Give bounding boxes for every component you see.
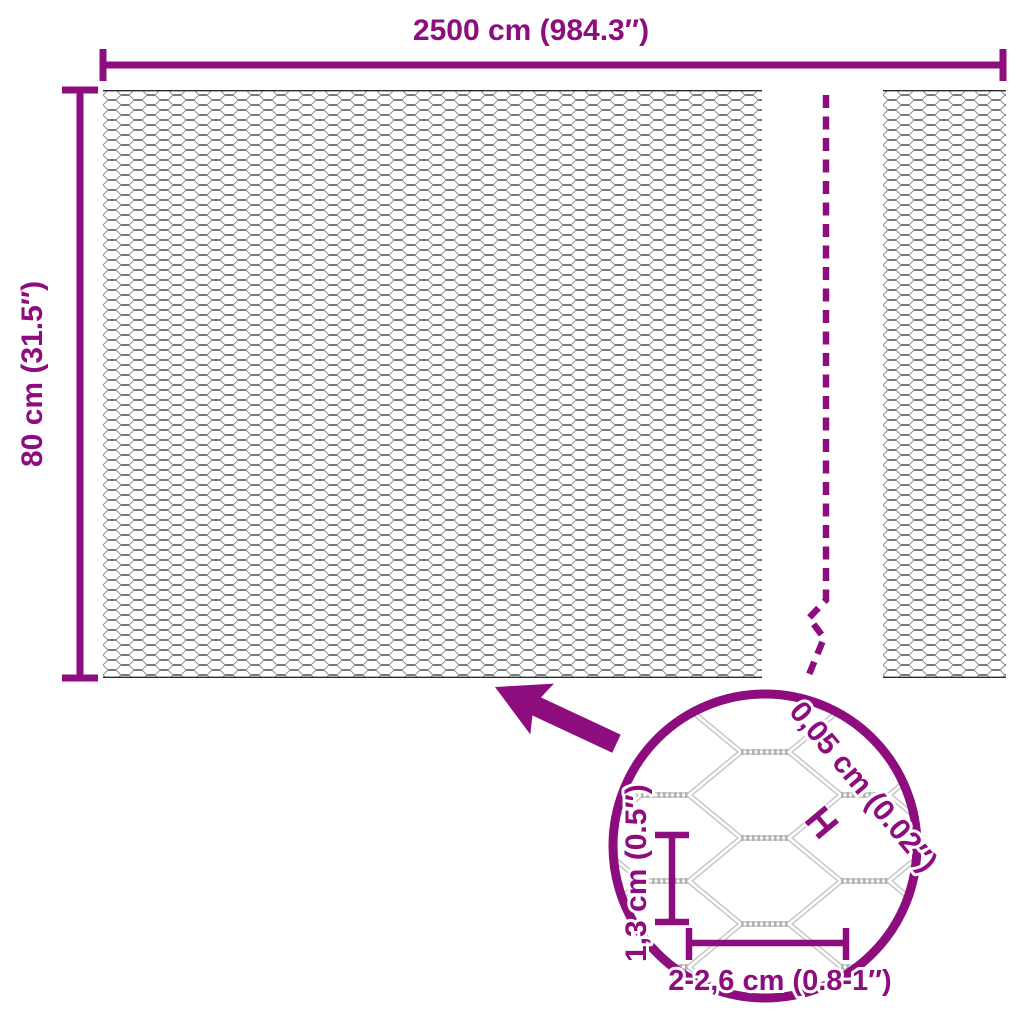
diagram-canvas: 2500 cm (984.3″) 80 cm (31.5″) 1,3 cm (0… <box>0 0 1024 1024</box>
mesh-height-label: 1,3 cm (0.5″) <box>620 784 653 962</box>
width-label: 2500 cm (984.3″) <box>413 14 649 47</box>
height-label: 80 cm (31.5″) <box>16 281 49 467</box>
height-measure-line <box>62 90 98 678</box>
mesh-panel-right <box>883 90 1006 678</box>
dashed-break-line-icon <box>808 95 826 677</box>
mesh-panel-left <box>103 90 762 678</box>
mesh-width-label: 2-2,6 cm (0.8-1″) <box>668 965 891 997</box>
detail-zoom-circle: 1,3 cm (0.5″) 2-2,6 cm (0.8-1″) 0,05 cm … <box>589 694 944 1010</box>
product-dimension-diagram: 2500 cm (984.3″) 80 cm (31.5″) 1,3 cm (0… <box>0 0 1024 1024</box>
width-measure-line <box>103 49 1003 81</box>
